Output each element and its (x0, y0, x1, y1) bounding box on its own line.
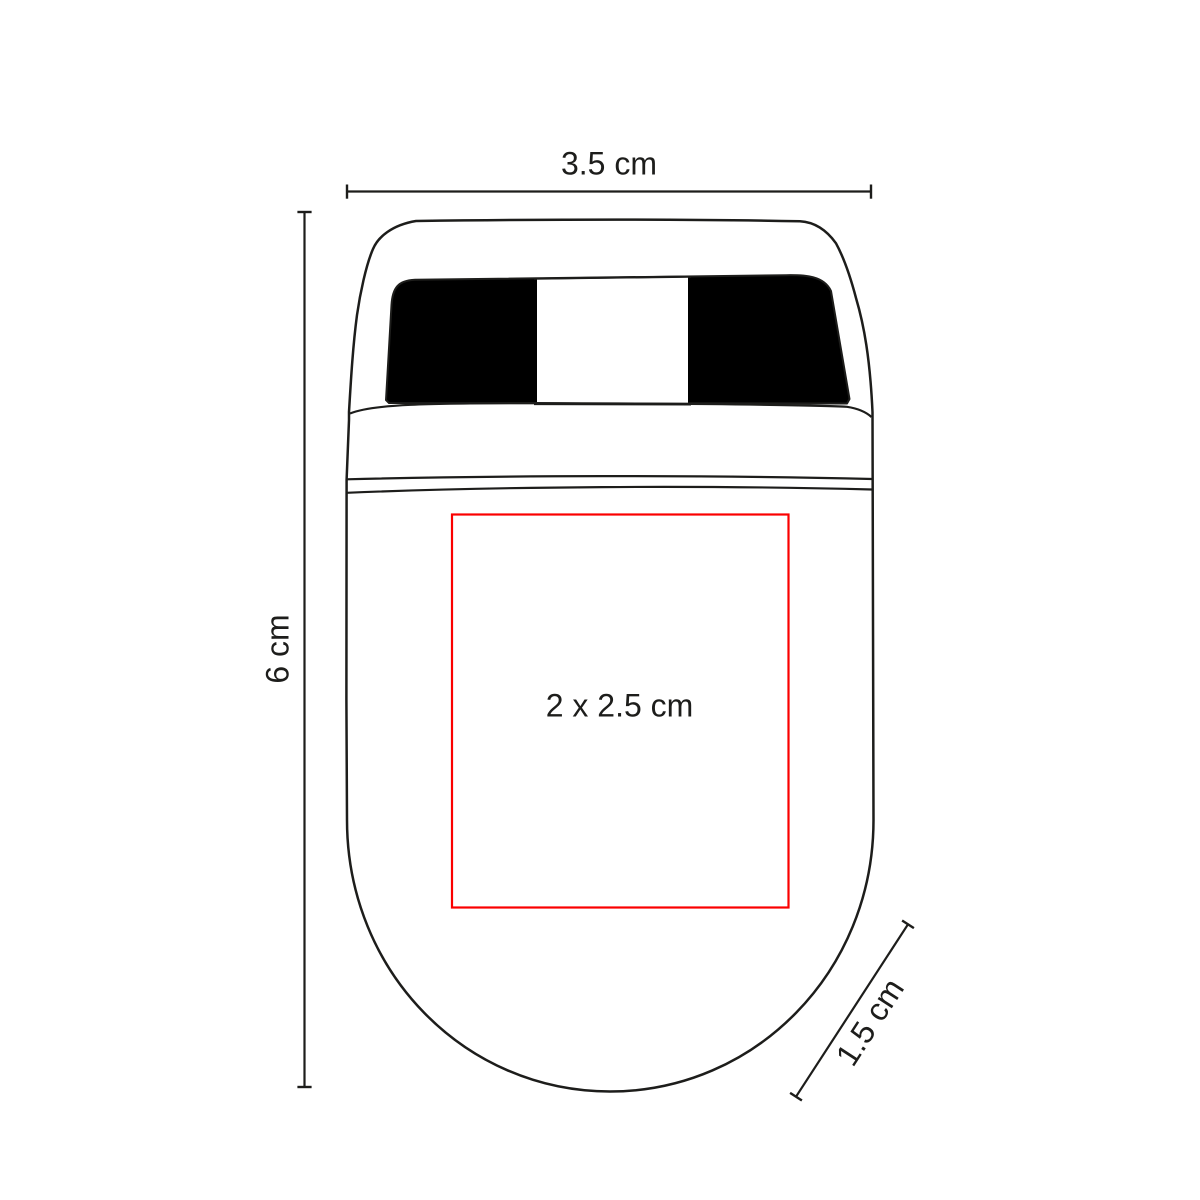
svg-text:3.5 cm: 3.5 cm (561, 146, 657, 182)
svg-text:2 x 2.5 cm: 2 x 2.5 cm (546, 688, 694, 724)
svg-text:6 cm: 6 cm (260, 614, 296, 683)
